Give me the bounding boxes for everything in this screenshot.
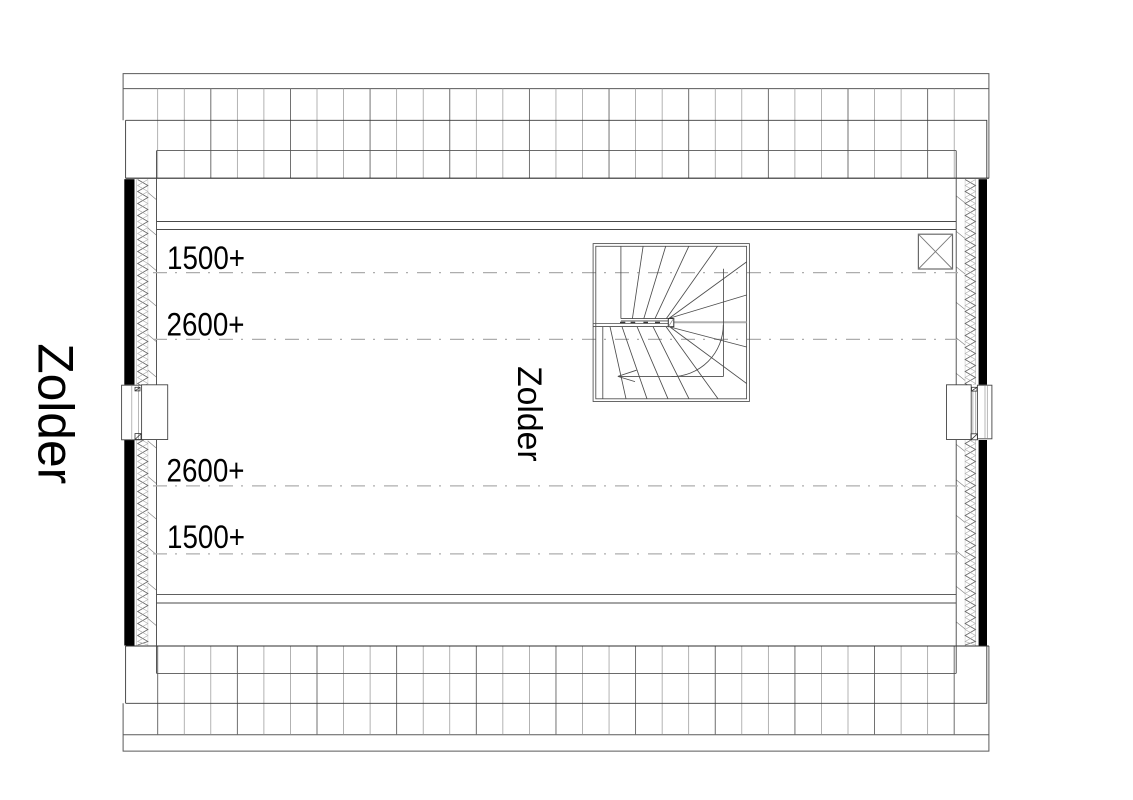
svg-text:1500+: 1500+	[167, 519, 245, 555]
svg-text:2600+: 2600+	[167, 453, 245, 489]
svg-text:Zolder: Zolder	[28, 343, 84, 484]
svg-text:Zolder: Zolder	[510, 366, 548, 462]
svg-text:1500+: 1500+	[167, 240, 245, 276]
svg-text:2600+: 2600+	[167, 306, 245, 342]
